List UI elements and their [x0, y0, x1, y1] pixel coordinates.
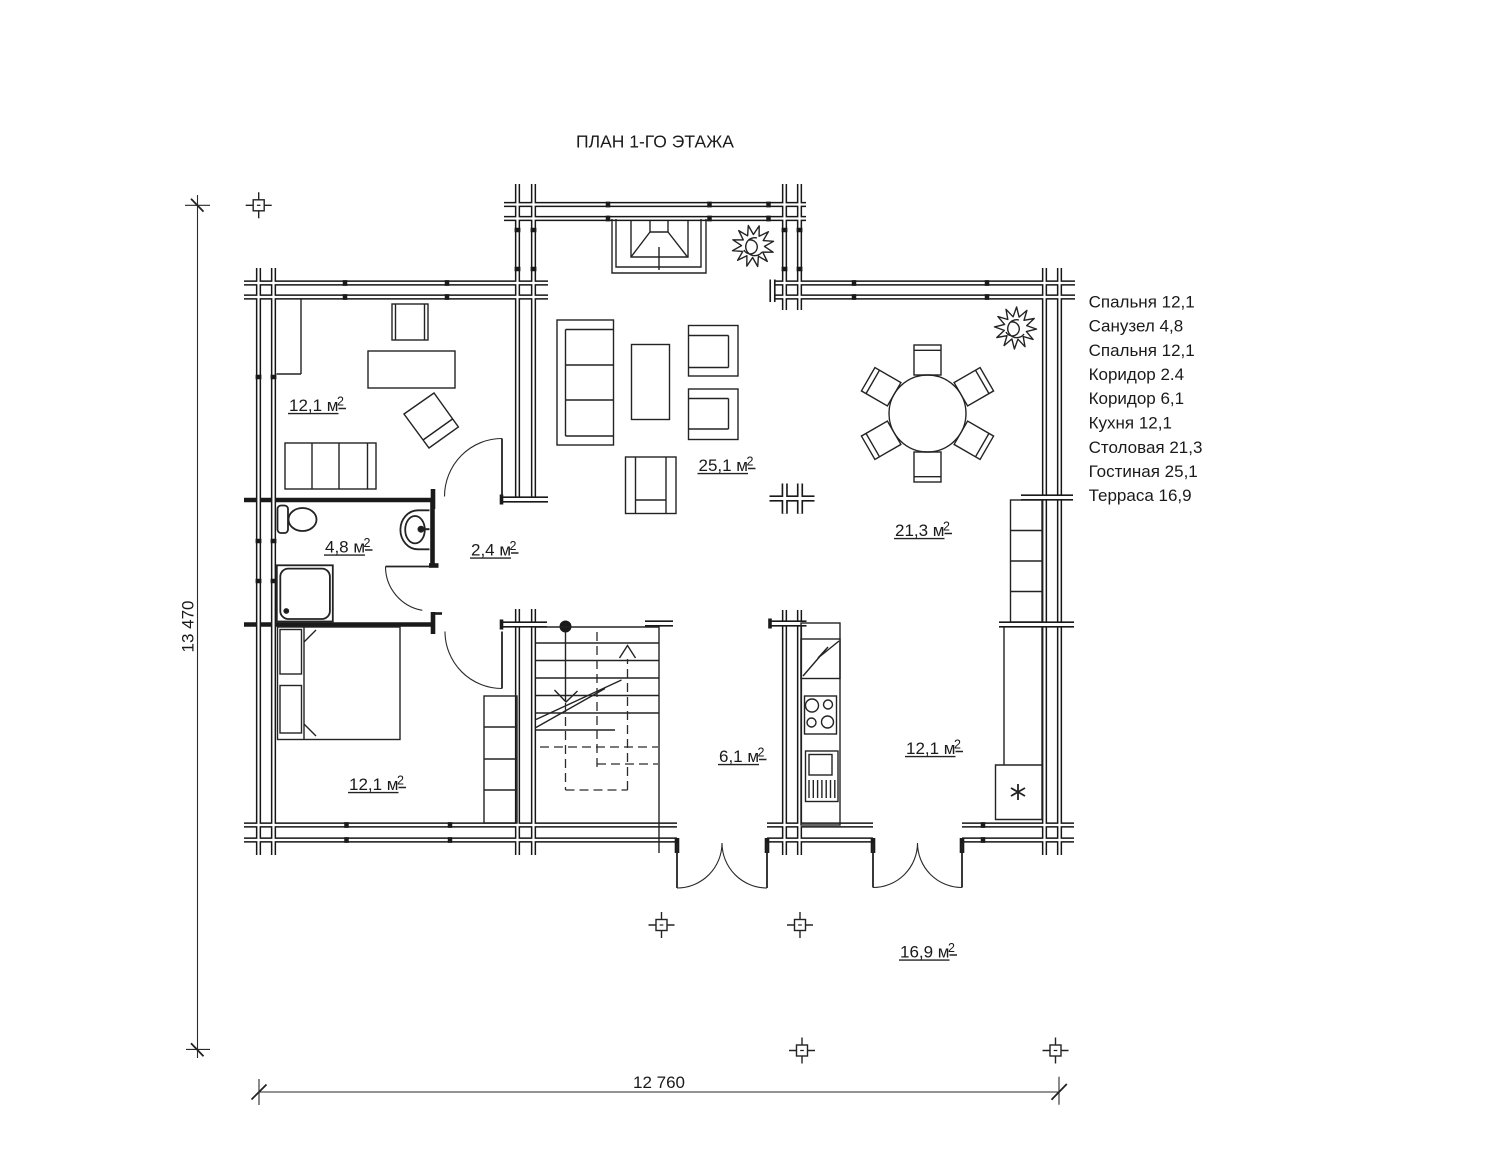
svg-text:2: 2 — [510, 539, 517, 553]
svg-text:2: 2 — [364, 536, 371, 550]
svg-text:Терраса 16,9: Терраса 16,9 — [1089, 486, 1192, 505]
svg-text:25,1 м: 25,1 м — [699, 456, 749, 475]
svg-text:6,1 м: 6,1 м — [719, 747, 759, 766]
svg-text:12,1 м: 12,1 м — [906, 739, 956, 758]
svg-text:2: 2 — [747, 455, 754, 469]
svg-text:21,3 м: 21,3 м — [895, 521, 945, 540]
svg-text:Гостиная 25,1: Гостиная 25,1 — [1089, 462, 1198, 481]
svg-text:2: 2 — [397, 774, 404, 788]
svg-text:12,1 м: 12,1 м — [349, 775, 399, 794]
svg-text:2: 2 — [337, 395, 344, 409]
svg-text:Спальня 12,1: Спальня 12,1 — [1089, 341, 1195, 360]
svg-text:2: 2 — [948, 941, 955, 955]
svg-text:Коридор 6,1: Коридор 6,1 — [1089, 389, 1185, 408]
svg-text:Столовая 21,3: Столовая 21,3 — [1089, 438, 1203, 457]
svg-text:12 760: 12 760 — [633, 1073, 685, 1092]
svg-text:Коридор 2.4: Коридор 2.4 — [1089, 365, 1185, 384]
svg-text:2: 2 — [943, 520, 950, 534]
svg-text:Кухня 12,1: Кухня 12,1 — [1089, 414, 1172, 433]
svg-text:12,1 м: 12,1 м — [289, 396, 339, 415]
svg-text:2: 2 — [954, 738, 961, 752]
svg-text:2: 2 — [758, 746, 765, 760]
svg-text:Санузел 4,8: Санузел 4,8 — [1089, 317, 1184, 336]
svg-text:13 470: 13 470 — [179, 601, 198, 653]
svg-text:16,9 м: 16,9 м — [900, 943, 950, 962]
svg-text:4,8 м: 4,8 м — [325, 538, 365, 557]
svg-text:2,4 м: 2,4 м — [471, 541, 511, 560]
svg-text:ПЛАН 1-ГО ЭТАЖА: ПЛАН 1-ГО ЭТАЖА — [576, 132, 734, 152]
svg-text:Спальня 12,1: Спальня 12,1 — [1089, 293, 1195, 312]
